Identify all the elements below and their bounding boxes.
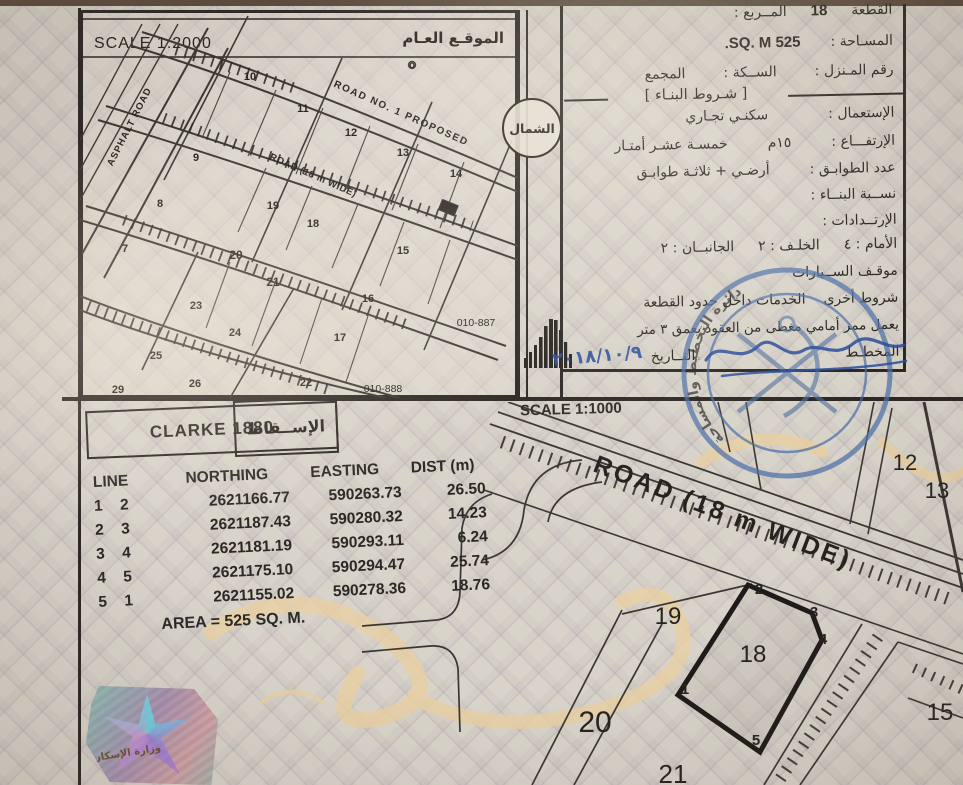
height-label: الإرتفـــاع : xyxy=(831,133,895,150)
map-label: 1 xyxy=(681,681,689,698)
street-label: الســكة : xyxy=(723,64,777,81)
use-row: الإستعمال : سكنـي تجـاري xyxy=(564,104,904,127)
survey-document: الموقـع العـام SCALE 1:2000 xyxy=(0,0,963,785)
table-cell: 5 xyxy=(98,590,125,615)
setbacks-label: الإرتــدادات : xyxy=(822,212,897,230)
highlighted-plot-18 xyxy=(678,585,822,752)
table-cell: LINE xyxy=(92,468,165,495)
map-right-border-outer xyxy=(518,10,520,400)
table-cell: 1 xyxy=(124,588,171,614)
height-value-words: خمسـة عشـر أمتـار xyxy=(614,136,727,154)
floors-value: أرضـي + ثلاثـة طوابـق xyxy=(636,162,769,181)
map-label: 4 xyxy=(819,631,828,648)
map-label: 18 xyxy=(307,218,319,230)
floors-label: عدد الطوابـق : xyxy=(809,160,895,178)
map-label: 17 xyxy=(334,332,346,344)
map-label: 9 xyxy=(193,152,199,164)
table-cell: 4 xyxy=(122,540,169,566)
house-row: رقم المـنزل : الســكة : المجمع xyxy=(563,61,903,84)
height-value-num: ١٥م xyxy=(767,135,791,151)
map-label: 010-887 xyxy=(457,317,496,329)
table-cell: 18.76 xyxy=(406,573,491,601)
table-cell: 1 xyxy=(94,494,121,519)
height-row: الإرتفـــاع : ١٥م خمسـة عشـر أمتـار xyxy=(565,132,905,155)
table-cell: 4 xyxy=(97,566,124,591)
area-value: 525 SQ. M. xyxy=(724,34,800,53)
north-indicator: الشمال xyxy=(502,98,562,158)
projection-box: CLARKE 1880 الإســقاط xyxy=(85,401,339,460)
table-cell: 5 xyxy=(123,564,170,590)
planner-signature xyxy=(700,320,912,384)
map-label: 16 xyxy=(362,293,374,305)
front-setback: الأمام : ٤ xyxy=(844,236,898,253)
setbacks-row: الإرتــدادات : xyxy=(567,211,907,234)
complex-label: المجمع xyxy=(644,66,685,83)
conditions-divider: [ شـروط البنـاء ] xyxy=(564,92,904,99)
map-label: 18 xyxy=(740,641,767,668)
overview-map: الموقـع العـام SCALE 1:2000 xyxy=(80,10,518,398)
map-label: 12 xyxy=(345,127,357,139)
north-label: الشمال xyxy=(509,121,555,136)
map-label: 010-888 xyxy=(364,383,403,395)
map-label: 15 xyxy=(927,699,954,726)
map-label: 22 xyxy=(300,377,312,389)
map-label: o xyxy=(409,60,415,71)
map-label: 13 xyxy=(925,478,949,503)
map-label: 7 xyxy=(122,243,128,255)
use-label: الإستعمال : xyxy=(828,105,895,122)
map-label: 19 xyxy=(267,200,279,212)
map-label: 24 xyxy=(229,327,242,339)
map-label: 5 xyxy=(752,732,760,749)
map-label: 3 xyxy=(810,604,818,621)
table-cell: 2621155.02 xyxy=(170,582,295,612)
map-label: 13 xyxy=(397,147,409,159)
map-label: 26 xyxy=(189,378,201,390)
area-row: المسـاحة : 525 SQ. M. xyxy=(563,31,903,55)
overview-map-title: الموقـع العـام xyxy=(402,29,504,47)
plot-label: القطعة xyxy=(851,2,892,19)
table-cell: 2 xyxy=(95,518,122,543)
projection-label: الإســقاط xyxy=(233,397,339,457)
ratio-label: نســبة البنــاء : xyxy=(810,186,896,204)
hologram-emblem-icon xyxy=(104,694,190,774)
floors-row: عدد الطوابـق : أرضـي + ثلاثـة طوابـق xyxy=(566,159,906,182)
map-label: 10 xyxy=(244,71,256,83)
square-label: المــربع : xyxy=(734,4,787,21)
table-cell: 2 xyxy=(119,492,166,518)
plot-value: 18 xyxy=(810,2,827,19)
map-label: 2 xyxy=(755,581,763,598)
house-no-label: رقم المـنزل : xyxy=(815,62,894,80)
map-label: 20 xyxy=(229,248,243,262)
map-label: 21 xyxy=(266,275,280,289)
table-cell: 3 xyxy=(96,542,123,567)
hologram-sticker: وزارة الإسكان xyxy=(86,686,218,785)
sides-setback: الجانبــان : ٢ xyxy=(661,239,735,257)
map-label: 11 xyxy=(297,103,309,115)
table-cell: 590278.36 xyxy=(294,577,407,606)
detail-scale-label: SCALE 1:1000 xyxy=(520,400,622,420)
area-label: المسـاحة : xyxy=(830,33,893,50)
map-label: 21 xyxy=(659,759,688,785)
coordinates-table: LINENORTHINGEASTINGDIST (m)122621166.775… xyxy=(92,453,491,637)
conditions-title: [ شـروط البنـاء ] xyxy=(608,85,784,105)
map-label: 19 xyxy=(655,603,682,630)
table-cell: 3 xyxy=(121,516,168,542)
ratio-row: نســبة البنــاء : xyxy=(566,185,906,208)
map-label: 8 xyxy=(157,198,163,210)
map-label: 23 xyxy=(190,300,202,312)
use-value: سكنـي تجـاري xyxy=(685,107,768,125)
map-label: 15 xyxy=(397,245,409,257)
map-label: 29 xyxy=(112,384,124,396)
map-label: 14 xyxy=(450,168,463,180)
map-label: 20 xyxy=(578,706,611,739)
map-label: 25 xyxy=(150,350,162,362)
setback-values-row: الأمام : ٤ الخلـف : ٢ الجانبــان : ٢ xyxy=(567,235,907,258)
back-setback: الخلـف : ٢ xyxy=(758,237,820,254)
